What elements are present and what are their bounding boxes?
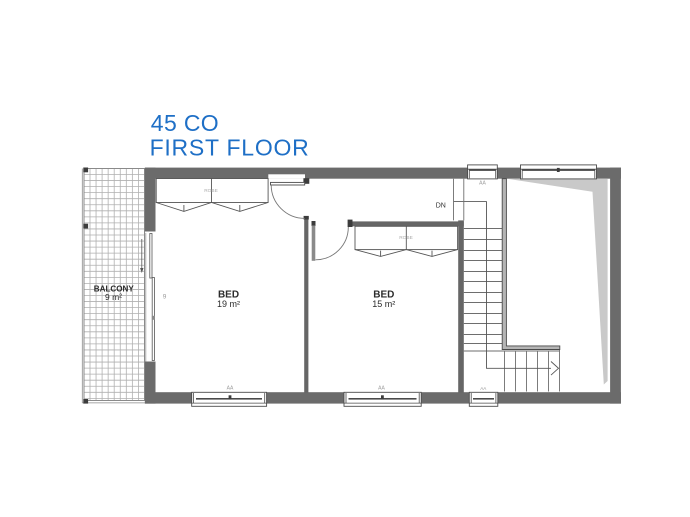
svg-text:9: 9	[163, 294, 167, 301]
svg-text:AA: AA	[378, 385, 385, 391]
svg-text:FIRST FLOOR: FIRST FLOOR	[150, 134, 310, 160]
svg-text:45 CO: 45 CO	[151, 110, 219, 136]
svg-text:ROBE: ROBE	[204, 188, 218, 194]
svg-text:ROBE: ROBE	[399, 235, 413, 241]
svg-text:9 m²: 9 m²	[105, 292, 122, 302]
svg-text:AA: AA	[227, 385, 234, 391]
svg-text:15 m²: 15 m²	[372, 299, 395, 309]
svg-text:19 m²: 19 m²	[217, 299, 240, 309]
svg-text:AA: AA	[479, 180, 486, 186]
svg-text:AA: AA	[480, 386, 487, 391]
svg-text:DN: DN	[436, 202, 446, 209]
